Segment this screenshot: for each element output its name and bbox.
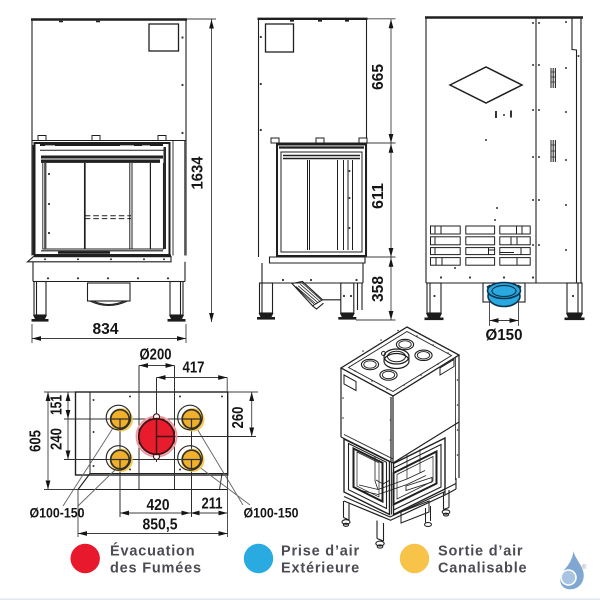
svg-text:Sortie d’air: Sortie d’air bbox=[438, 544, 523, 560]
svg-text:Ø100-150: Ø100-150 bbox=[244, 505, 299, 521]
svg-text:665: 665 bbox=[370, 64, 387, 90]
svg-text:Ø150: Ø150 bbox=[486, 327, 523, 344]
svg-text:Ø200: Ø200 bbox=[140, 347, 172, 364]
svg-text:834: 834 bbox=[93, 321, 119, 338]
svg-text:240: 240 bbox=[49, 428, 66, 450]
svg-text:260: 260 bbox=[230, 406, 247, 428]
svg-text:Ø100-150: Ø100-150 bbox=[30, 505, 85, 521]
svg-text:Extérieure: Extérieure bbox=[281, 561, 360, 577]
svg-text:1634: 1634 bbox=[190, 156, 207, 189]
svg-text:®: ® bbox=[582, 564, 587, 571]
svg-text:358: 358 bbox=[370, 276, 387, 302]
svg-text:850,5: 850,5 bbox=[143, 517, 178, 534]
svg-text:420: 420 bbox=[147, 497, 170, 514]
svg-text:611: 611 bbox=[370, 183, 387, 209]
svg-text:des Fumées: des Fumées bbox=[110, 561, 202, 577]
svg-text:Canalisable: Canalisable bbox=[438, 561, 527, 577]
svg-text:151: 151 bbox=[49, 395, 66, 415]
svg-text:417: 417 bbox=[183, 360, 205, 377]
svg-text:605: 605 bbox=[28, 430, 45, 452]
svg-text:Évacuation: Évacuation bbox=[110, 543, 195, 560]
svg-text:211: 211 bbox=[202, 496, 223, 513]
svg-text:Prise d’air: Prise d’air bbox=[281, 544, 360, 560]
